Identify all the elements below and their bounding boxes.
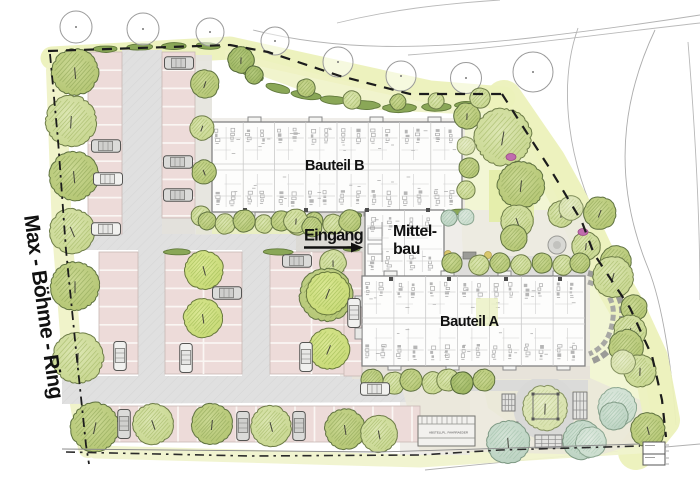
svg-text:Mittel-: Mittel- [393,223,437,240]
svg-text:bau: bau [393,241,420,258]
svg-text:Eingang: Eingang [304,227,363,245]
svg-text:ABSTELLPL. FAHRRAEDER: ABSTELLPL. FAHRRAEDER [429,431,469,435]
svg-text:Bauteil A: Bauteil A [440,314,500,330]
svg-text:Bauteil B: Bauteil B [305,158,364,174]
